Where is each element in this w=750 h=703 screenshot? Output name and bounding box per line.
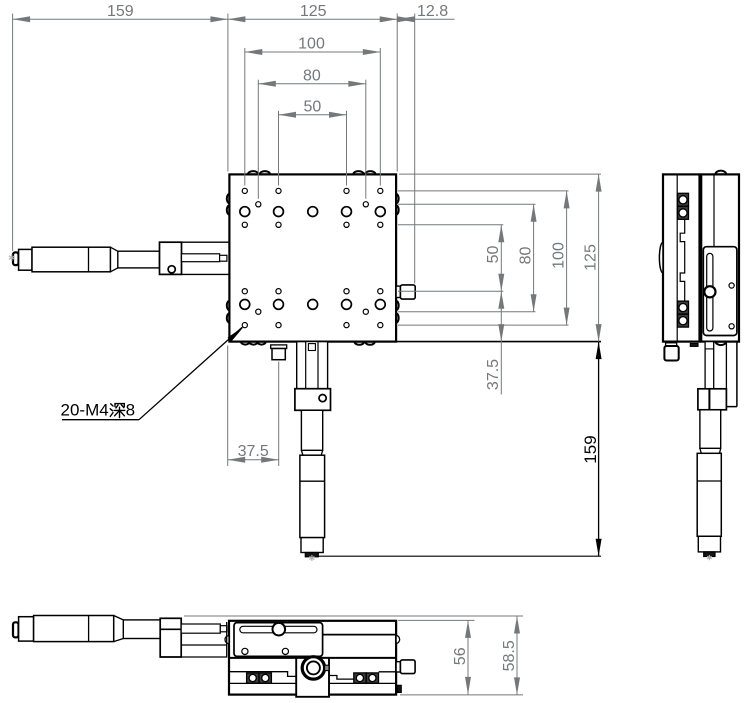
svg-text:80: 80: [517, 247, 534, 265]
svg-text:100: 100: [550, 242, 567, 269]
svg-text:20-M4: 20-M4: [61, 401, 109, 420]
svg-text:56: 56: [452, 647, 469, 665]
svg-text:58.5: 58.5: [501, 640, 518, 671]
svg-text:125: 125: [300, 3, 327, 20]
svg-text:37.5: 37.5: [485, 359, 502, 390]
svg-text:50: 50: [304, 98, 322, 115]
svg-text:159: 159: [581, 435, 600, 463]
svg-text:125: 125: [582, 244, 599, 271]
svg-text:37.5: 37.5: [238, 443, 269, 460]
svg-text:80: 80: [303, 67, 321, 84]
svg-text:50: 50: [485, 246, 502, 264]
svg-text:100: 100: [298, 36, 325, 53]
svg-text:8: 8: [126, 401, 135, 420]
svg-text:12.8: 12.8: [417, 3, 448, 20]
svg-text:159: 159: [107, 3, 134, 20]
